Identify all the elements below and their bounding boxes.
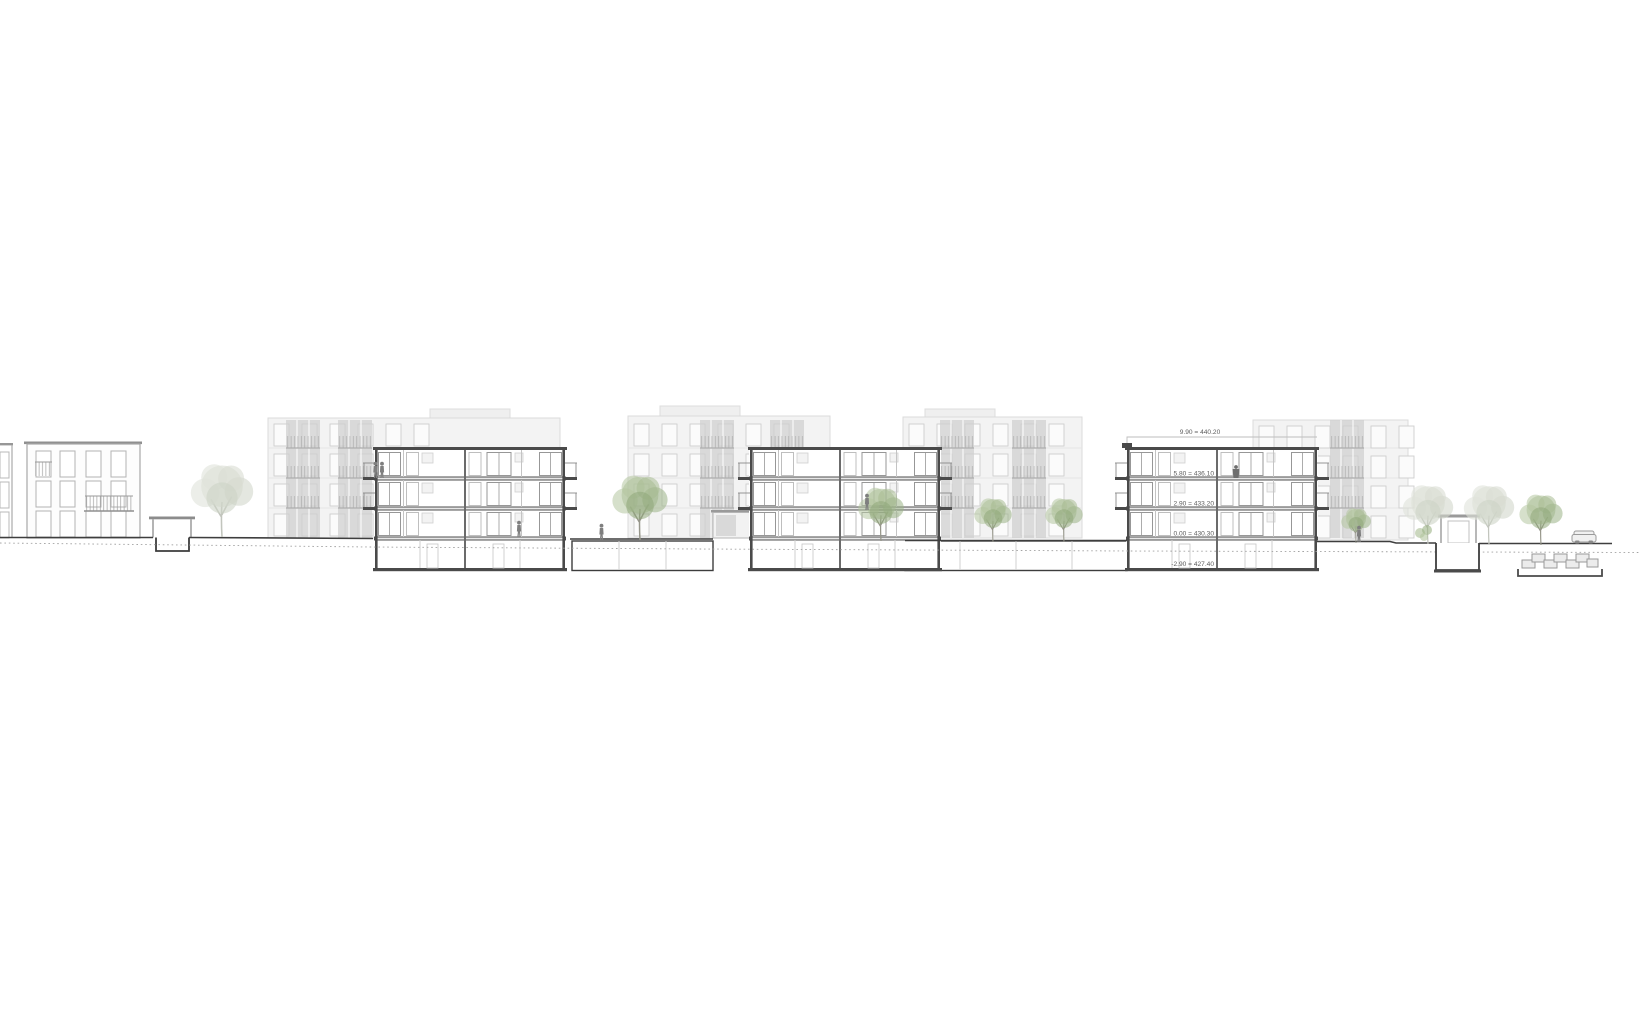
edge-building-fragment — [0, 443, 13, 538]
level-label-3: 5.80 = 436.10 — [1173, 471, 1214, 478]
ramp-portal-right — [1434, 515, 1481, 573]
pedestrian-courtyard — [599, 524, 603, 540]
section-building-c — [1115, 443, 1329, 571]
level-label-2: 2.90 = 433.20 — [1173, 501, 1214, 508]
site-key-plan — [1518, 554, 1602, 576]
level-label-ground: 0.00 = 430.30 — [1173, 531, 1214, 538]
underground-garage-1 — [572, 541, 713, 571]
level-label-roof: 9.90 = 440.20 — [1180, 429, 1221, 436]
street-tree-right-2 — [1464, 485, 1514, 544]
section-drawing: 9.90 = 440.20 5.80 = 436.10 2.90 = 433.2… — [0, 0, 1640, 1020]
existing-building-left — [24, 442, 142, 539]
section-building-a — [363, 447, 577, 571]
shrub-right — [1415, 525, 1432, 541]
juliet-balcony-railing — [35, 462, 52, 476]
street-tree-left — [191, 464, 253, 537]
section-drawing-sheet: 9.90 = 440.20 5.80 = 436.10 2.90 = 433.2… — [0, 0, 1640, 1020]
street-tree-right-3 — [1519, 495, 1562, 545]
balcony-railing — [84, 496, 134, 511]
underpass-entry-left — [149, 517, 195, 552]
level-label-basement: -2.90 = 427.40 — [1171, 561, 1214, 568]
car-front-view — [1572, 531, 1596, 544]
